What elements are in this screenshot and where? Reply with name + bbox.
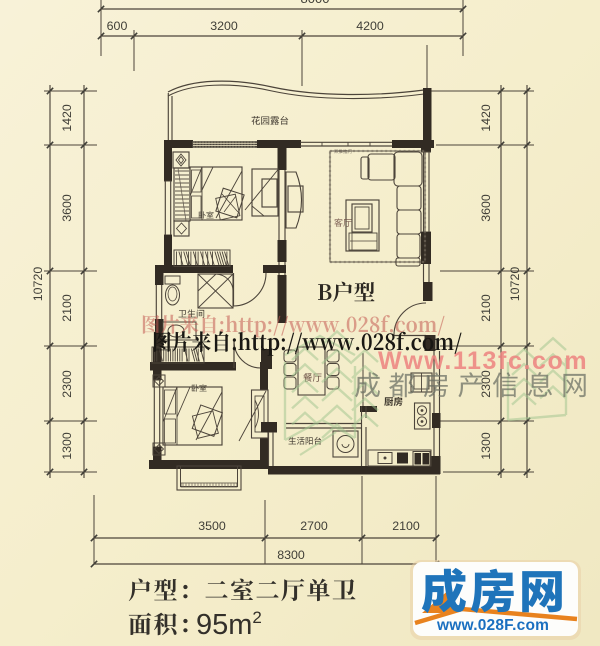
svg-text:Www.113fc.com: Www.113fc.com — [378, 347, 588, 375]
svg-text:10720: 10720 — [508, 267, 522, 302]
svg-text:2100: 2100 — [392, 519, 420, 533]
svg-text:3600: 3600 — [60, 194, 74, 222]
svg-text:95m2: 95m2 — [196, 608, 262, 641]
svg-text:3200: 3200 — [210, 19, 238, 33]
svg-text:3500: 3500 — [198, 519, 226, 533]
svg-text:600: 600 — [107, 19, 128, 33]
svg-text:2300: 2300 — [60, 370, 74, 398]
svg-text:4200: 4200 — [356, 19, 384, 33]
svg-text:1420: 1420 — [479, 104, 493, 132]
svg-text:2700: 2700 — [300, 519, 328, 533]
svg-text:8000: 8000 — [301, 0, 330, 6]
svg-text:8300: 8300 — [277, 548, 305, 562]
svg-text:2100: 2100 — [60, 294, 74, 322]
svg-text:1420: 1420 — [60, 104, 74, 132]
svg-text:10720: 10720 — [31, 267, 45, 302]
svg-text:1300: 1300 — [479, 432, 493, 460]
svg-text:1300: 1300 — [60, 432, 74, 460]
svg-text:www.028F.com: www.028F.com — [436, 617, 549, 634]
svg-text:3600: 3600 — [479, 194, 493, 222]
svg-text:2100: 2100 — [479, 294, 493, 322]
